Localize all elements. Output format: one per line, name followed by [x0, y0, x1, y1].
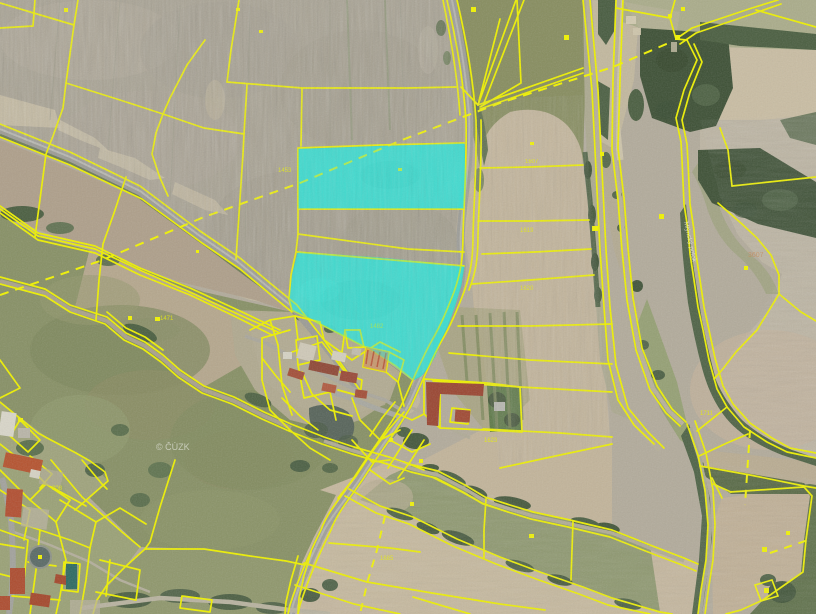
svg-text:1453: 1453 — [278, 168, 292, 174]
svg-text:208: 208 — [52, 486, 63, 492]
svg-text:1607: 1607 — [525, 159, 539, 165]
svg-text:1685: 1685 — [380, 556, 394, 562]
svg-text:1711: 1711 — [700, 411, 714, 417]
svg-text:1471: 1471 — [160, 316, 174, 322]
svg-text:1619: 1619 — [520, 228, 534, 234]
svg-text:© ČÚZK: © ČÚZK — [156, 442, 190, 452]
svg-text:1620: 1620 — [520, 286, 534, 292]
svg-text:1623: 1623 — [484, 438, 498, 444]
svg-text:3607: 3607 — [748, 252, 764, 259]
svg-text:1482: 1482 — [370, 324, 384, 330]
